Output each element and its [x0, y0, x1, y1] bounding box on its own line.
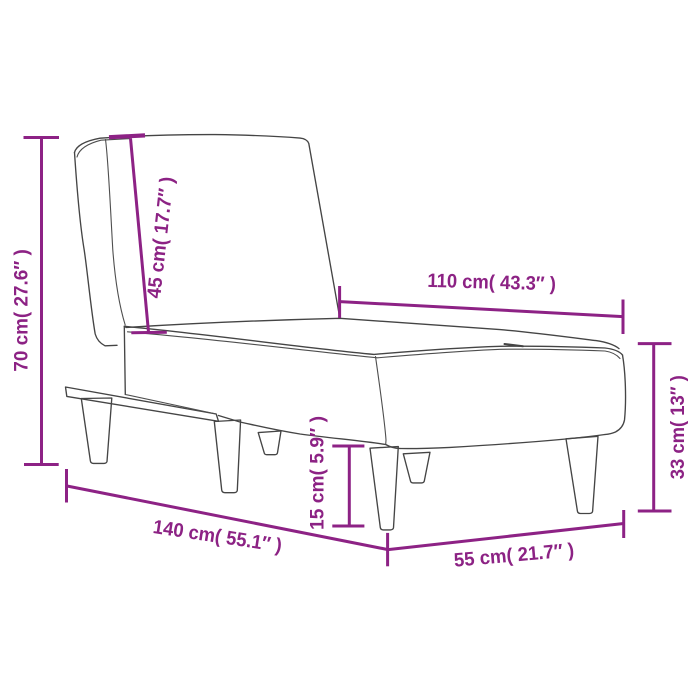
svg-text:70 cm( 27.6″ ): 70 cm( 27.6″ ) — [11, 249, 33, 372]
svg-text:110 cm( 43.3″ ): 110 cm( 43.3″ ) — [427, 270, 556, 295]
svg-text:15 cm( 5.9″ ): 15 cm( 5.9″ ) — [307, 416, 329, 530]
svg-text:33 cm( 13″ ): 33 cm( 13″ ) — [667, 375, 689, 479]
